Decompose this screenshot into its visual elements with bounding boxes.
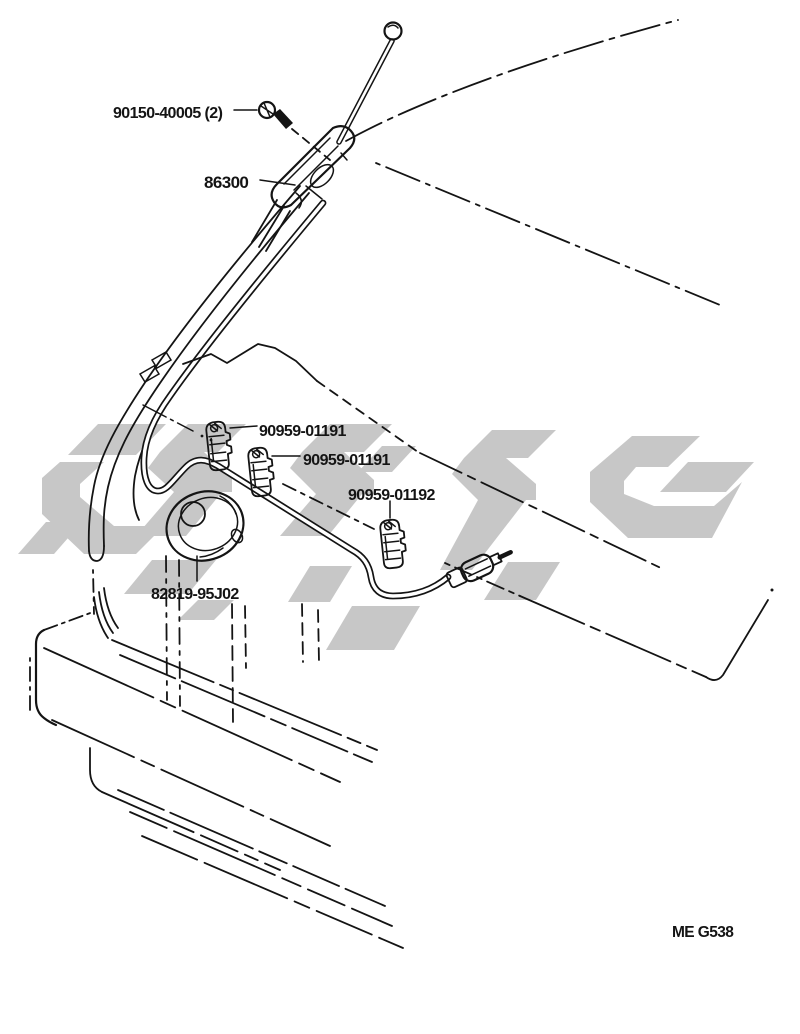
- antenna-base: [252, 126, 354, 251]
- label-antenna: 86300: [204, 173, 248, 192]
- label-clamp-1: 90959-01191: [259, 423, 347, 440]
- roof-phantom-lines: [346, 20, 720, 305]
- pillar-trim-clip: [140, 352, 171, 382]
- label-clamp-2: 90959-01191: [303, 452, 391, 469]
- label-screw: 90150-40005 (2): [113, 105, 223, 122]
- antenna-cord: [144, 203, 448, 596]
- fender-outline-right: [445, 563, 774, 680]
- clamp-3: [380, 519, 408, 569]
- screw-icon: [259, 102, 330, 160]
- figure-code: ME G538: [672, 924, 734, 941]
- antenna-parts-diagram: 90150-40005 (2) 86300 90959-01191 90959-…: [0, 0, 800, 1034]
- label-clamp-3: 90959-01192: [348, 487, 436, 504]
- antenna-mast: [339, 23, 402, 143]
- label-grommet: 82819-95J02: [151, 586, 239, 603]
- parts-diagram-page: 90150-40005 (2) 86300 90959-01191 90959-…: [0, 0, 800, 1034]
- body-line-right: [376, 163, 720, 305]
